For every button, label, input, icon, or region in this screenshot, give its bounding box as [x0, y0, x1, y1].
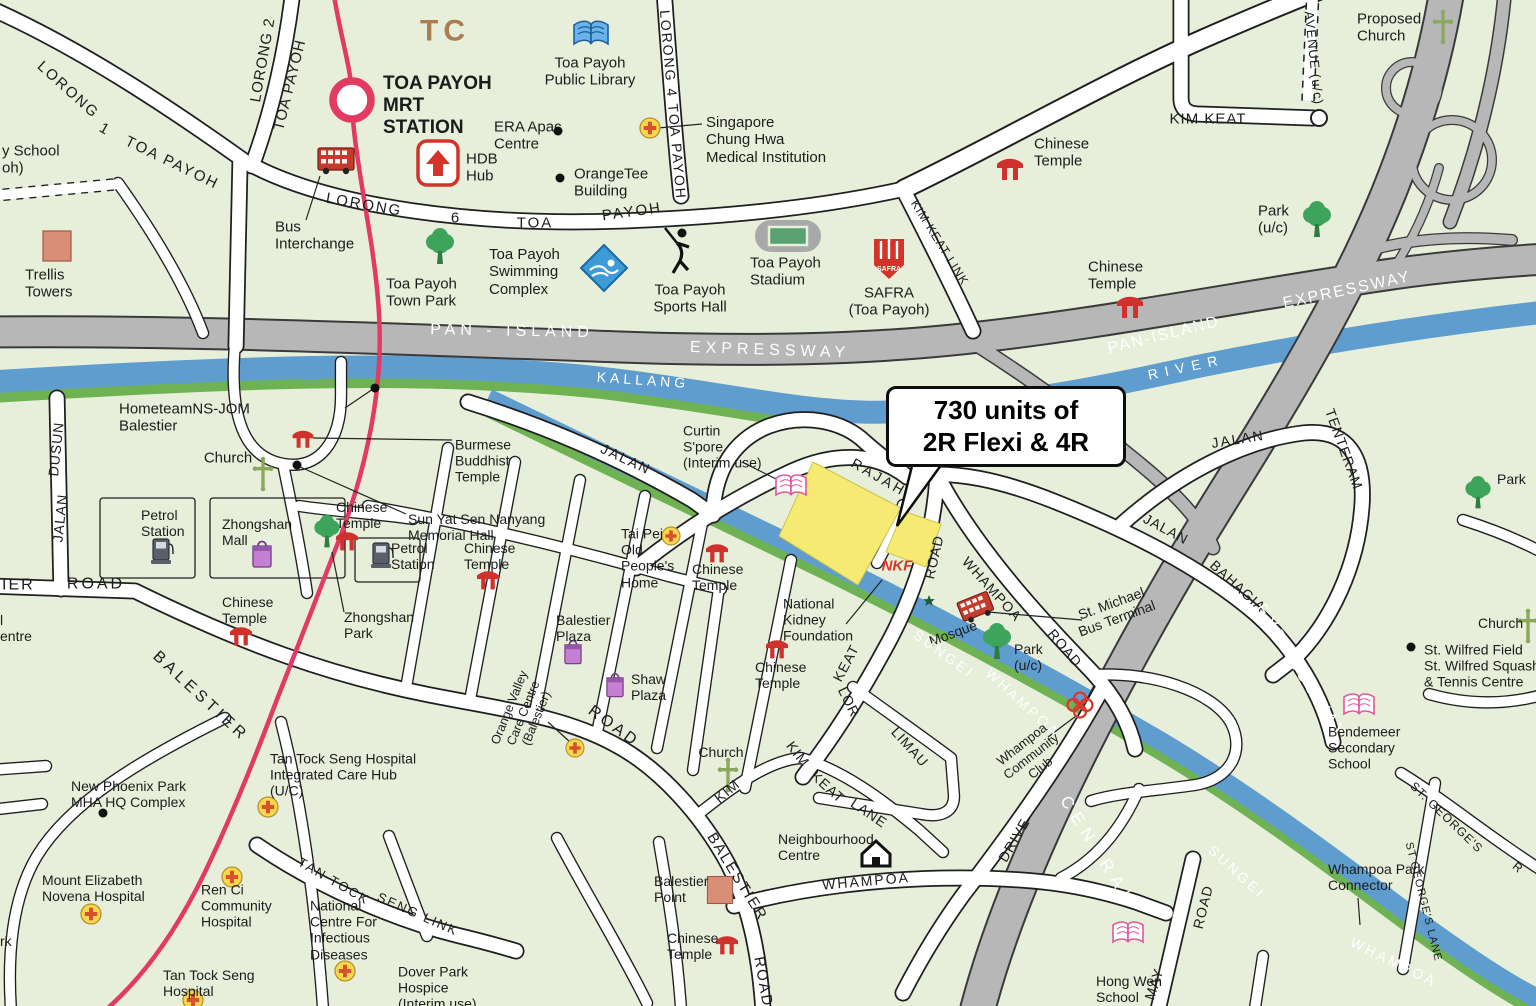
mall-icon: [253, 542, 271, 568]
poi-dot-icon: [293, 461, 302, 470]
house-icon: [862, 841, 890, 866]
book-icon: [1344, 694, 1374, 714]
bus-icon: [318, 148, 354, 174]
medical-cross-icon: [662, 527, 680, 545]
swimming-complex-icon: [581, 245, 627, 291]
building-icon: [707, 877, 732, 904]
chinese-temple-icon: [706, 544, 728, 562]
stadium-icon: [755, 220, 821, 252]
tree-icon: [1465, 476, 1490, 508]
poi-dot-icon: [99, 809, 108, 818]
book-icon: [1113, 922, 1143, 942]
church-cross-icon: [1518, 609, 1536, 644]
poi-dot-icon: [556, 174, 565, 183]
safra-logo-icon: [874, 239, 904, 279]
poi-dot-icon: [554, 127, 563, 136]
petrol-pump-icon: [371, 543, 393, 568]
tree-icon: [426, 228, 454, 264]
medical-cross-icon: [566, 739, 584, 757]
medical-cross-icon: [81, 904, 101, 924]
chinese-temple-icon: [997, 159, 1023, 180]
chinese-temple-icon: [716, 936, 738, 954]
map-graphics: SAFRA: [0, 0, 1536, 1006]
medical-cross-icon: [640, 118, 660, 138]
callout-730-units: 730 units of 2R Flexi & 4R: [886, 386, 1126, 467]
book-icon: [776, 475, 806, 495]
library-book-icon: [574, 21, 608, 44]
mrt-station-icon: [333, 81, 371, 119]
medical-cross-icon: [335, 961, 355, 981]
tree-icon: [1303, 201, 1331, 237]
map-canvas: SAFRA: [0, 0, 1536, 1006]
poi-dot-icon: [1407, 643, 1416, 652]
chinese-temple-icon: [293, 431, 314, 448]
mall-icon: [565, 641, 581, 664]
petrol-pump-icon: [151, 539, 173, 564]
tennis-player-icon: [665, 228, 689, 273]
medical-cross-icon: [222, 867, 242, 887]
poi-dot-icon: [371, 384, 380, 393]
building-icon: [43, 231, 71, 261]
hdb-hub-icon: [418, 141, 458, 185]
medical-cross-icon: [258, 797, 278, 817]
medical-cross-icon: [183, 990, 203, 1006]
